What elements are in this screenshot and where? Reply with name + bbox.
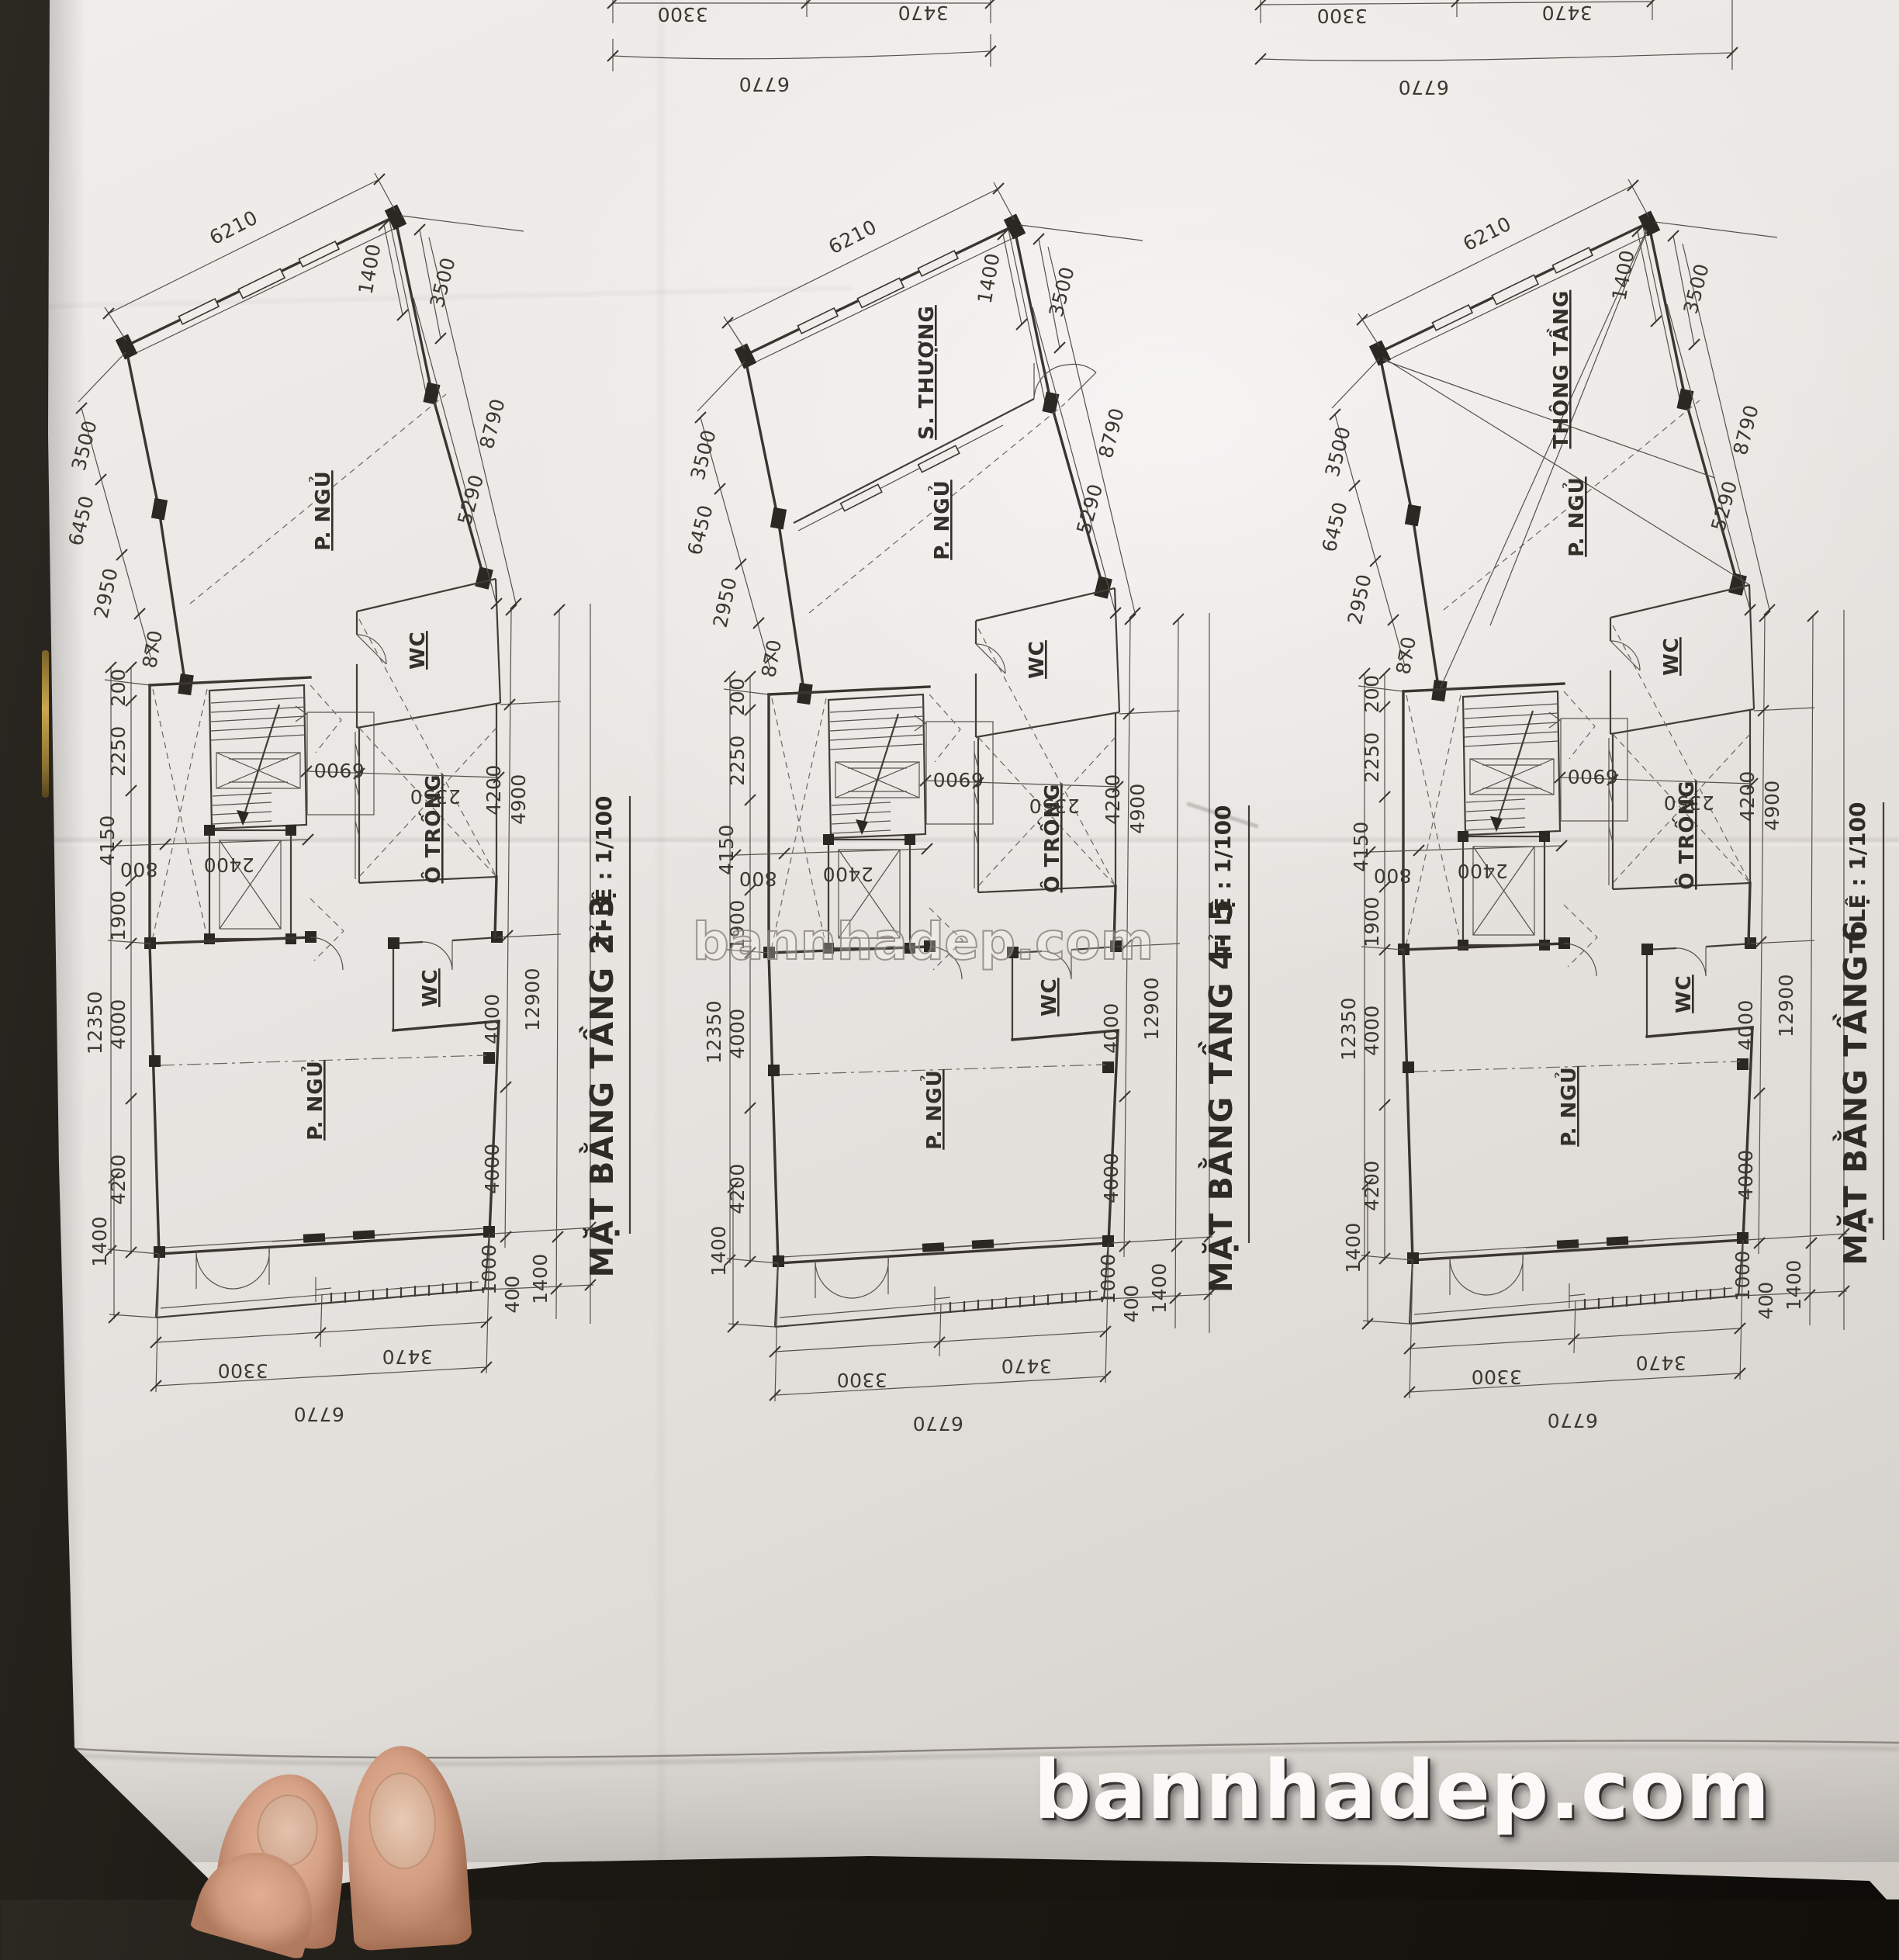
dim-label: 4200 [1361, 1160, 1383, 1211]
dim-label: 4150 [96, 815, 119, 866]
top-chain-right: 3300 3470 6770 [1255, 0, 1738, 99]
table-edge-sliver [42, 650, 49, 798]
dim-label: 4200 [1102, 774, 1124, 825]
dim-label: 1400 [1783, 1259, 1805, 1311]
dim-label: 2950 [90, 566, 123, 620]
dim-label: 1400 [707, 1225, 730, 1276]
plan-scale-text: TỈ LỆ : 1/100 [1842, 802, 1870, 953]
dim-label: 6210 [206, 206, 261, 250]
dim-label: 3500 [1321, 424, 1355, 480]
dim-label: 3470 [1541, 2, 1593, 24]
dim-label: 4000 [726, 1008, 749, 1059]
dim-label: 3300 [657, 3, 708, 26]
room-label-wc-upper: WC [1660, 637, 1683, 676]
plan-title: MẶT BẰNG TẦNG 6 TỈ LỆ : 1/100 [1832, 802, 1883, 1265]
dim-label: 3470 [1635, 1352, 1686, 1374]
cutoff-dimension-chains: 3300 3470 6770 3300 3470 6770 [0, 0, 1899, 109]
room-label-bedroom: P. NGỦ [299, 1060, 327, 1140]
floor-plan-drawing: P. NGỦ WC Ô TRỐNG WC P. NGỦ 6210 1400 35… [43, 107, 655, 1473]
dim-label: 400 [501, 1275, 524, 1313]
dim-label: 12350 [703, 1000, 725, 1064]
plan-title-text: MẶT BẰNG TẦNG 2-3 [579, 895, 621, 1277]
dim-label: 3300 [217, 1359, 268, 1382]
plan-title: MẶT BẰNG TẦNG 4- 5 TỈ LỆ : 1/100 [1198, 805, 1249, 1293]
room-label-wc-lower: WC [419, 968, 442, 1007]
dim-label: 6770 [738, 73, 790, 95]
plan-title-text: MẶT BẰNG TẦNG 6 [1832, 919, 1874, 1265]
dim-label: 4150 [715, 824, 738, 875]
dim-label: 800 [1373, 864, 1411, 887]
room-label-bedroom: P. NGỦ [918, 1069, 946, 1149]
dim-label: 3500 [67, 418, 102, 473]
floor-plan-tang-2-3: P. NGỦ WC Ô TRỐNG WC P. NGỦ 6210 1400 35… [43, 107, 655, 1473]
dim-label: 1400 [355, 242, 386, 296]
dim-label: 2250 [1361, 732, 1383, 783]
dim-label: 6450 [1318, 500, 1352, 555]
dim-label: 870 [757, 638, 786, 680]
dim-label: 200 [1361, 674, 1383, 712]
room-label-upper-a: S. THƯỢNG [915, 305, 939, 440]
dim-label: 1900 [726, 899, 749, 951]
dim-label: 4000 [1361, 1005, 1383, 1056]
dim-label: 12900 [521, 968, 544, 1031]
room-label-wc-lower: WC [1038, 978, 1061, 1016]
dim-label: 4000 [481, 993, 503, 1044]
dim-label: 4200 [726, 1163, 749, 1214]
dim-label: 6210 [1459, 213, 1515, 256]
dim-label: 2400 [822, 863, 873, 885]
dim-label: 6770 [293, 1403, 344, 1425]
dim-label: 12350 [84, 991, 106, 1054]
dim-label: 5290 [453, 472, 488, 527]
floor-plan-drawing: THÔNG TẦNG P. NGỦ WC Ô TRỐNG WC P. NGỦ 6… [1296, 113, 1899, 1479]
dim-label: 4900 [1761, 780, 1783, 831]
floor-plan-drawing: S. THƯỢNG P. NGỦ WC Ô TRỐNG WC P. NGỦ 62… [662, 116, 1275, 1482]
dim-label: 8790 [476, 397, 510, 452]
dim-label: 400 [1120, 1284, 1143, 1322]
dim-label: 1900 [1361, 896, 1383, 947]
dim-label: 4200 [1736, 770, 1759, 822]
dim-label: 4150 [1350, 821, 1372, 872]
dim-label: 6450 [64, 493, 99, 549]
dim-label: 870 [1392, 635, 1420, 677]
dim-label: 6210 [825, 216, 880, 259]
dim-label: 3500 [687, 428, 721, 483]
room-label-upper-b: P. NGỦ [307, 470, 335, 550]
dim-label: 1900 [107, 890, 130, 941]
dim-label: 2950 [1344, 572, 1376, 626]
plan-title: MẶT BẰNG TẦNG 2-3 TỈ LỆ : 1/100 [579, 795, 630, 1277]
dim-label: 12900 [1775, 974, 1797, 1037]
dim-label: 3500 [426, 255, 460, 310]
dim-label: 4900 [507, 774, 530, 825]
dim-label: 3500 [1045, 265, 1079, 320]
dim-label: 1400 [529, 1253, 552, 1304]
floor-plan-tang-6: THÔNG TẦNG P. NGỦ WC Ô TRỐNG WC P. NGỦ 6… [1296, 113, 1899, 1479]
dim-label: 3500 [1679, 261, 1714, 317]
dim-label: 4000 [107, 999, 130, 1050]
dim-label: 800 [119, 858, 157, 881]
dim-label: 6450 [683, 503, 718, 558]
dim-label: 800 [738, 867, 777, 890]
room-label-bedroom: P. NGỦ [1553, 1066, 1581, 1146]
dim-label: 1400 [1148, 1262, 1171, 1314]
dim-label: 4000 [481, 1143, 503, 1194]
dim-label: 2350 [410, 785, 461, 808]
dim-label: 870 [138, 629, 167, 670]
room-label-upper-b: P. NGỦ [1561, 476, 1589, 556]
room-label-wc-upper: WC [406, 631, 430, 670]
dim-label: 6770 [912, 1412, 963, 1435]
dim-label: 1400 [974, 251, 1005, 306]
dim-label: 4200 [483, 764, 505, 816]
dim-label: 4000 [1735, 999, 1757, 1051]
building-walls [116, 204, 503, 1318]
dim-label: 12350 [1337, 997, 1360, 1061]
dim-label: 8790 [1095, 406, 1129, 461]
dim-label: 2350 [1663, 791, 1714, 814]
plan-scale-text: TỈ LỆ : 1/100 [588, 795, 617, 947]
dim-label: 2250 [107, 725, 130, 777]
dim-label: 2250 [726, 735, 749, 786]
dim-label: 4000 [1100, 1152, 1122, 1203]
dim-label: 3300 [1471, 1366, 1522, 1388]
dim-label: 8790 [1729, 403, 1763, 458]
dim-label: 12900 [1140, 977, 1163, 1041]
dim-label: 4200 [107, 1154, 130, 1205]
dim-label: 6900 [1567, 765, 1618, 788]
plan-title-text: MẶT BẰNG TẦNG 4- 5 [1198, 899, 1240, 1293]
dim-label: 5290 [1707, 478, 1742, 533]
dim-label: 6900 [313, 759, 365, 781]
dim-label: 6900 [932, 768, 984, 791]
dim-label: 3470 [382, 1345, 433, 1368]
dim-label: 3300 [836, 1369, 887, 1391]
dim-label: 2950 [709, 575, 742, 629]
paper-bottom-shadow [0, 1738, 1899, 1862]
dim-label: 1400 [88, 1216, 111, 1267]
room-label-wc-upper: WC [1026, 640, 1049, 679]
dim-label: 6770 [1398, 76, 1449, 99]
dim-label: 4000 [1735, 1149, 1757, 1200]
room-label-wc-lower: WC [1672, 975, 1696, 1013]
dim-label: 1400 [1342, 1222, 1365, 1273]
dim-label: 4000 [1100, 1003, 1122, 1054]
blueprint-paper: 3300 3470 6770 3300 3470 6770 [0, 0, 1899, 1899]
room-label-upper-a: THÔNG TẦNG [1546, 290, 1573, 449]
dim-label: 4900 [1126, 783, 1149, 834]
dim-label: 1400 [1608, 248, 1639, 303]
dim-label: 2400 [1457, 860, 1508, 882]
dim-label: 3470 [898, 2, 949, 24]
dim-label: 2350 [1029, 795, 1080, 817]
room-label-upper-b: P. NGỦ [926, 480, 954, 559]
dim-label: 200 [107, 668, 130, 706]
plan-scale-text: TỈ LỆ : 1/100 [1207, 805, 1236, 956]
dim-label: 3470 [1001, 1355, 1052, 1377]
top-chain-left: 3300 3470 6770 [607, 0, 996, 95]
dim-label: 5290 [1072, 481, 1107, 536]
dim-label: 200 [726, 677, 749, 715]
dim-label: 6770 [1547, 1409, 1598, 1432]
dim-label: 3300 [1316, 5, 1368, 27]
floor-plan-tang-4-5: S. THƯỢNG P. NGỦ WC Ô TRỐNG WC P. NGỦ 62… [662, 116, 1275, 1482]
photo-scene: 3300 3470 6770 3300 3470 6770 [0, 0, 1899, 1899]
dim-label: 2400 [203, 854, 254, 876]
dim-label: 400 [1755, 1281, 1777, 1319]
